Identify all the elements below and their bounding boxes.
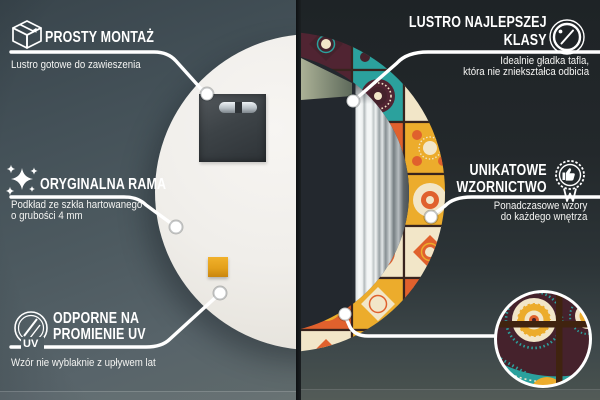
callout-simple-mounting-subtitle: Lustro gotowe do zawieszenia [11, 55, 158, 73]
callout-original-frame-title: ORYGINALNA RAMA [40, 176, 202, 194]
split-divider [296, 0, 301, 400]
floor-line-right [298, 389, 600, 400]
mirror-shine-icon [546, 15, 588, 59]
product-infographic: UV PROSTY MONTAŻ Lustro gotowe do zawies… [0, 0, 600, 400]
callout-uv-title: ODPORNE NA PROMIENIE UV [53, 311, 172, 343]
uv-icon-label: UV [23, 338, 39, 350]
callout-unique-design-title: UNIKATOWE WZORNICTWO [431, 162, 547, 196]
uv-circle-icon: UV [8, 309, 52, 351]
callout-simple-mounting-title: PROSTY MONTAŻ [45, 29, 185, 47]
callout-unique-design-subtitle: Ponadczasowe wzory do każdego wnętrza [481, 201, 587, 223]
thumbs-up-glyph [563, 168, 575, 180]
sparkles-icon [6, 164, 40, 198]
callout-uv-subtitle: Wzór nie wyblaknie z upływem lat [11, 353, 175, 371]
package-box-icon [8, 15, 46, 51]
callout-top-class-subtitle: Idealnie gładka tafla, która nie znieksz… [446, 56, 589, 78]
floor-line-left [0, 391, 298, 400]
callout-original-frame-subtitle: Podkład ze szkła hartowanego o grubości … [11, 200, 160, 222]
callout-top-class-title: LUSTRO NAJLEPSZEJ KLASY [370, 14, 547, 49]
